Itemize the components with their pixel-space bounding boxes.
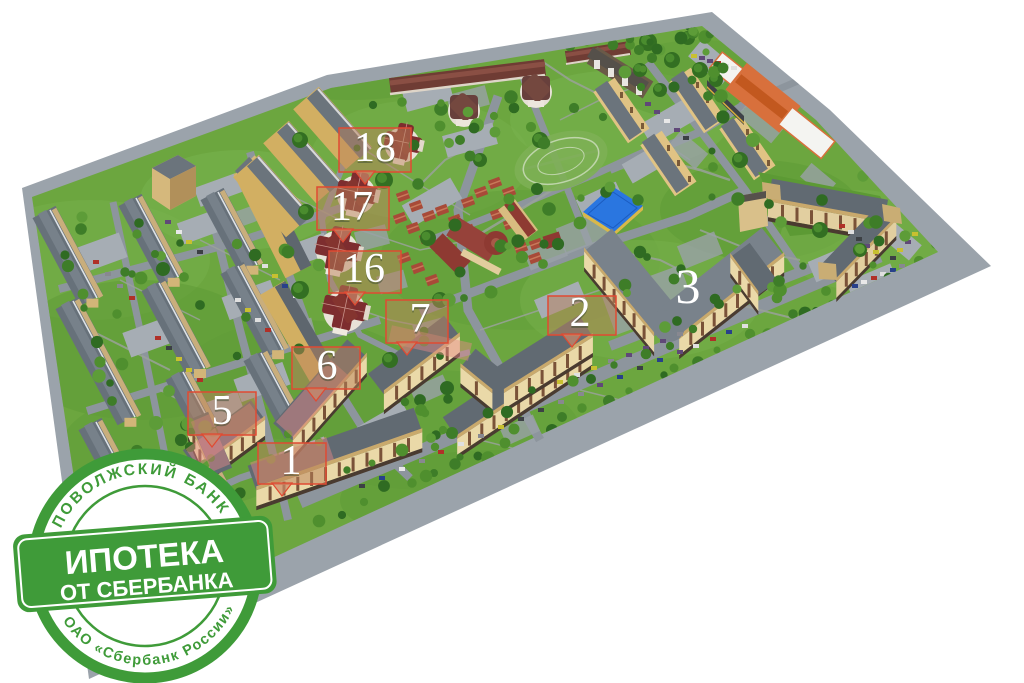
svg-text:2: 2 [570, 290, 591, 336]
svg-text:1: 1 [281, 438, 302, 484]
svg-text:18: 18 [354, 125, 396, 171]
svg-text:7: 7 [410, 296, 431, 342]
svg-text:17: 17 [331, 184, 373, 230]
svg-text:3: 3 [676, 258, 701, 314]
svg-text:5: 5 [212, 388, 233, 434]
svg-text:16: 16 [343, 246, 385, 292]
svg-text:6: 6 [317, 343, 338, 389]
